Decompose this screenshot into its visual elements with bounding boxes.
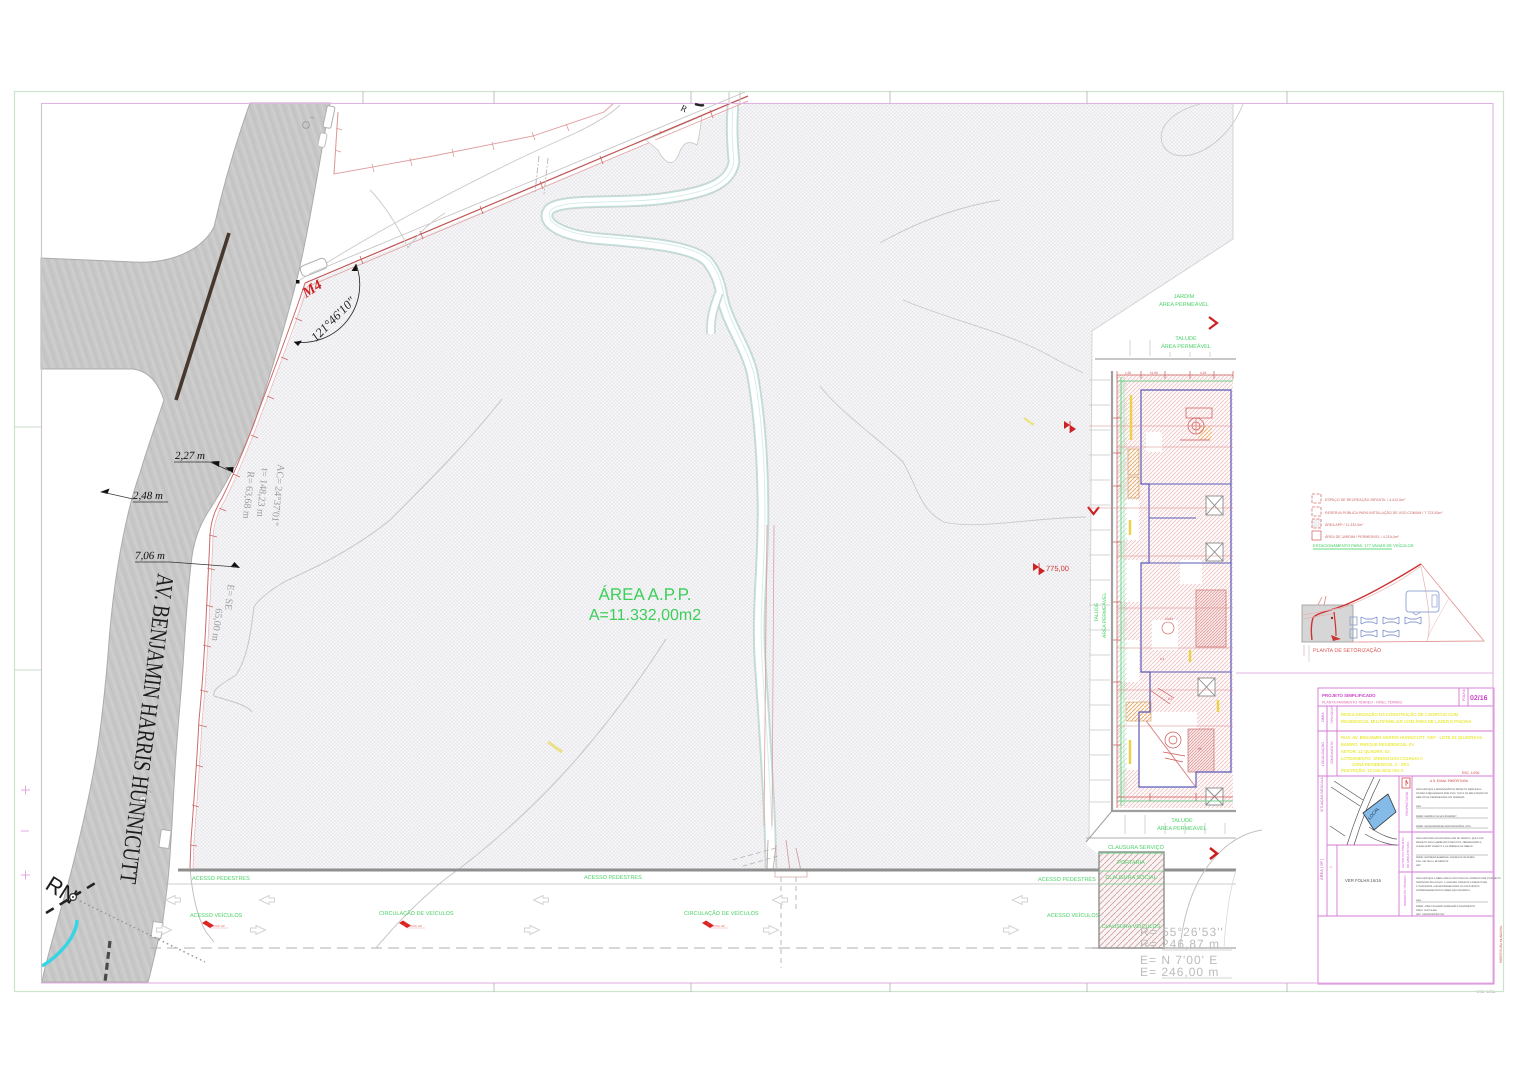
svg-text:NOME: RODRIGO BARBOSA LADEIRA: NOME: RODRIGO BARBOSA LADEIRA DE REZENDE	[1416, 856, 1475, 859]
svg-text:ESTACIONAMENTO PARA: 177 VAGAS: ESTACIONAMENTO PARA: 177 VAGAS DE VEÍCUL…	[1313, 543, 1414, 548]
svg-text:CLAUSURA SERVIÇO: CLAUSURA SERVIÇO	[1108, 845, 1165, 851]
svg-text:DIRIGENTE TÉCNICO: DIRIGENTE TÉCNICO	[1403, 875, 1407, 906]
svg-text:PLANTA PAVIMENTO TÉRREO - NÍVE: PLANTA PAVIMENTO TÉRREO - NÍVEL TÉRREO	[1322, 700, 1403, 705]
svg-text:DECLARO QUE A OBRA SERÁ EXECUT: DECLARO QUE A OBRA SERÁ EXECUTADA DE ACO…	[1416, 876, 1501, 880]
svg-text:DE ARQUITETURA: DE ARQUITETURA	[1406, 842, 1410, 868]
svg-text:11,80: 11,80	[1150, 371, 1158, 375]
svg-text:ZONA RESIDENCIAL 3 - ZR3: ZONA RESIDENCIAL 3 - ZR3	[1352, 762, 1410, 767]
svg-text:CAU: A31762-0 • RESIDENTE: CAU: A31762-0 • RESIDENTE	[1416, 860, 1449, 863]
svg-text:PROJETO SIMPLIFICADO: PROJETO SIMPLIFICADO	[1322, 693, 1376, 698]
svg-text:CIRCULAÇÃO DE VEÍCULOS: CIRCULAÇÃO DE VEÍCULOS	[379, 910, 454, 917]
svg-text:PREFEITURA MUNICIPAL: PREFEITURA MUNICIPAL	[1499, 925, 1503, 963]
svg-text:ACOMPANHAMENTO DA OBRA AQUI DE: ACOMPANHAMENTO DA OBRA AQUI DESCRITA.	[1416, 889, 1471, 892]
svg-text:775,00: 775,00	[1046, 564, 1069, 573]
svg-text:FOLHA: FOLHA	[1462, 688, 1466, 701]
svg-text:2,48 m: 2,48 m	[133, 490, 163, 502]
svg-text:36: 36	[1198, 747, 1202, 751]
svg-text:ART: 14920000000007532: ART: 14920000000007532	[1416, 913, 1445, 916]
svg-text:OBRA: OBRA	[1321, 712, 1325, 722]
svg-text:E TERCEIROS, A RESPONSABILIDAD: E TERCEIROS, A RESPONSABILIDADE DA EXECU…	[1416, 884, 1480, 888]
svg-text:RUA: AV. BENJAMIN HARRIS HUN: RUA: AV. BENJAMIN HARRIS HUNNICUTT, S/Nº…	[1341, 735, 1483, 740]
svg-text:ÁREA PERMEÁVEL: ÁREA PERMEÁVEL	[1101, 592, 1108, 638]
svg-text:CREA: 104713-MG: CREA: 104713-MG	[1416, 909, 1437, 912]
svg-text:E= 246,00 m: E= 246,00 m	[1140, 965, 1219, 979]
svg-text:TALUDE: TALUDE	[1171, 818, 1193, 824]
svg-text:PLANTA DE SETORIZAÇÃO: PLANTA DE SETORIZAÇÃO	[1313, 647, 1381, 654]
svg-text:ACESSO PEDESTRES: ACESSO PEDESTRES	[192, 876, 250, 882]
svg-text:9,1: 9,1	[1160, 657, 1165, 661]
svg-text:RESERVA PÚBLICA PARA INSTALAÇÃ: RESERVA PÚBLICA PARA INSTALAÇÃO DE USO C…	[1325, 510, 1443, 515]
svg-text:CIRCULAÇÃO DE VEÍCULOS: CIRCULAÇÃO DE VEÍCULOS	[684, 910, 759, 917]
svg-text:NOME: MARCELO ALVES PERROUT: NOME: MARCELO ALVES PERROUT	[1416, 815, 1457, 818]
svg-text:À S. EXMA. PREFEITURA: À S. EXMA. PREFEITURA	[1430, 779, 1469, 783]
svg-text:ÁREA PERMEÁVEL: ÁREA PERMEÁVEL	[1161, 343, 1211, 350]
svg-text:8,2: 8,2	[1168, 697, 1173, 701]
svg-text:ÁREA APP / 11.332,0m²: ÁREA APP / 11.332,0m²	[1325, 522, 1364, 527]
svg-text:RESIDENCIAL MULTIFAMILIAR COM: RESIDENCIAL MULTIFAMILIAR COM ÁREA DE LA…	[1341, 719, 1472, 724]
svg-text:ACESSO VEÍCULOS: ACESSO VEÍCULOS	[1047, 912, 1100, 919]
svg-text:R= 246,87 m: R= 246,87 m	[1140, 937, 1220, 951]
svg-text:PICK UP: PICK UP	[410, 924, 422, 928]
svg-text:ESPAÇO DE RECREAÇÃO INFANTIL /: ESPAÇO DE RECREAÇÃO INFANTIL / 4.412,0m²	[1325, 497, 1406, 502]
svg-text:JARDIM: JARDIM	[1174, 294, 1195, 300]
svg-text:CLAUSURA SOCIAL: CLAUSURA SOCIAL	[1105, 875, 1156, 881]
svg-text:BAIRRO: PARQUE RESIDENCIAL XV: BAIRRO: PARQUE RESIDENCIAL XV	[1341, 742, 1414, 747]
svg-text:PICK UP: PICK UP	[713, 924, 725, 928]
svg-text:PROPRIETÁRIO: PROPRIETÁRIO	[1405, 791, 1409, 816]
svg-text:ART:: ART:	[1416, 864, 1421, 867]
svg-text:DO NÃO ENQUADRADO POR ESTE: DO NÃO ENQUADRADO POR ESTE TESTE DE PRES…	[1416, 791, 1488, 795]
svg-text:PICK UP: PICK UP	[213, 924, 225, 928]
svg-text:AUTOR DO PROJETO: AUTOR DO PROJETO	[1401, 837, 1405, 868]
svg-text:ACESSO VEÍCULOS: ACESSO VEÍCULOS	[190, 912, 243, 919]
svg-text:4,23: 4,23	[1200, 371, 1206, 375]
svg-text:SETOR: 12: SETOR: 12 QUADRA: 02	[1341, 749, 1390, 754]
svg-text:ASS.: ASS.	[1416, 899, 1422, 902]
svg-text:ZONEAMENTO: ZONEAMENTO	[1330, 741, 1334, 764]
svg-text:DECLARO PARA OS DEVIDOS FINS D: DECLARO PARA OS DEVIDOS FINS DE DIREITO,…	[1416, 837, 1484, 840]
svg-text:ESC. 1/250: ESC. 1/250	[1462, 771, 1479, 775]
svg-text:7,06 m: 7,06 m	[135, 550, 165, 562]
svg-text:ÁREA PERMEÁVEL: ÁREA PERMEÁVEL	[1159, 301, 1209, 308]
svg-text:SITUAÇÃO S/ESCALA: SITUAÇÃO S/ESCALA	[1320, 776, 1324, 812]
svg-text:A=11.332,00m2: A=11.332,00m2	[589, 607, 701, 624]
svg-text:ASS.: ASS.	[1416, 805, 1422, 808]
svg-text:TIPO OCUP.: TIPO OCUP.	[1330, 706, 1334, 724]
svg-text:APROVADO PELA P.M.U. E ASSUMO,: APROVADO PELA P.M.U. E ASSUMO, PERANTE A…	[1416, 881, 1488, 884]
svg-text:NOME: MASSARANDUBA PARTICIPA: NOME: MASSARANDUBA PARTICIPAÇÕES LTDA.	[1416, 824, 1472, 828]
svg-text:1,50: 1,50	[1125, 371, 1131, 375]
svg-text:DIREITO DE PROPRIEDADE DO TERR: DIREITO DE PROPRIEDADE DO TERRENO.	[1416, 796, 1465, 799]
svg-text:NOME: JOSÉ EDUARDO GUIMARÃES: NOME: JOSÉ EDUARDO GUIMARÃES NASCIMENTO	[1416, 904, 1475, 908]
svg-text:TALUDE: TALUDE	[1094, 602, 1100, 622]
svg-text:2,27 m: 2,27 m	[175, 450, 205, 462]
svg-text:ÁREA DE JARDIM / PERMEÁVEL / 4: ÁREA DE JARDIM / PERMEÁVEL / 4.219,0m²	[1325, 534, 1400, 539]
svg-text:PROJETO FOI ELABORADO COM ÉTIC: PROJETO FOI ELABORADO COM ÉTICA, OBSERVA…	[1416, 840, 1482, 844]
svg-text:ACESSO PEDESTRES: ACESSO PEDESTRES	[1038, 877, 1096, 883]
svg-text:ÁREA A.P.P.: ÁREA A.P.P.	[599, 585, 692, 604]
svg-text:LOTEAMENTO: JARDIM DAS COLINA: LOTEAMENTO: JARDIM DAS COLINAS II	[1341, 756, 1423, 761]
svg-text:ÁREA ( M² ): ÁREA ( M² )	[1319, 858, 1324, 880]
svg-text:INSCRIÇÃO: 12.044.0231.001-0: INSCRIÇÃO: 12.044.0231.001-0	[1341, 768, 1404, 773]
svg-text:ACESSO PEDESTRES: ACESSO PEDESTRES	[584, 875, 642, 881]
svg-text:REGULARIZAÇÃO DA CONSTRUÇÃO DE: REGULARIZAÇÃO DA CONSTRUÇÃO DE 1 EDIFÍCI…	[1341, 712, 1459, 717]
svg-text:VER FOLHA 16/16: VER FOLHA 16/16	[1345, 878, 1382, 883]
svg-text:DECLARO QUE A APROVAÇÃO DO PRO: DECLARO QUE A APROVAÇÃO DO PROJETO SIMPL…	[1416, 787, 1482, 791]
svg-text:ÁREA PERMEÁVEL: ÁREA PERMEÁVEL	[1157, 825, 1207, 832]
svg-text:1: 1	[1329, 866, 1333, 868]
svg-text:02/16: 02/16	[1470, 694, 1488, 702]
svg-text:10,42: 10,42	[1165, 617, 1173, 621]
svg-text:LOCALIZAÇÃO: LOCALIZAÇÃO	[1321, 742, 1325, 766]
svg-text:LEGISLAÇÃO VIGENTE E AS NORMAS: LEGISLAÇÃO VIGENTE E AS NORMAS DE OBRAS.	[1416, 844, 1473, 848]
svg-text:PORTARIA: PORTARIA	[1117, 860, 1145, 866]
svg-text:TALUDE: TALUDE	[1175, 336, 1197, 342]
